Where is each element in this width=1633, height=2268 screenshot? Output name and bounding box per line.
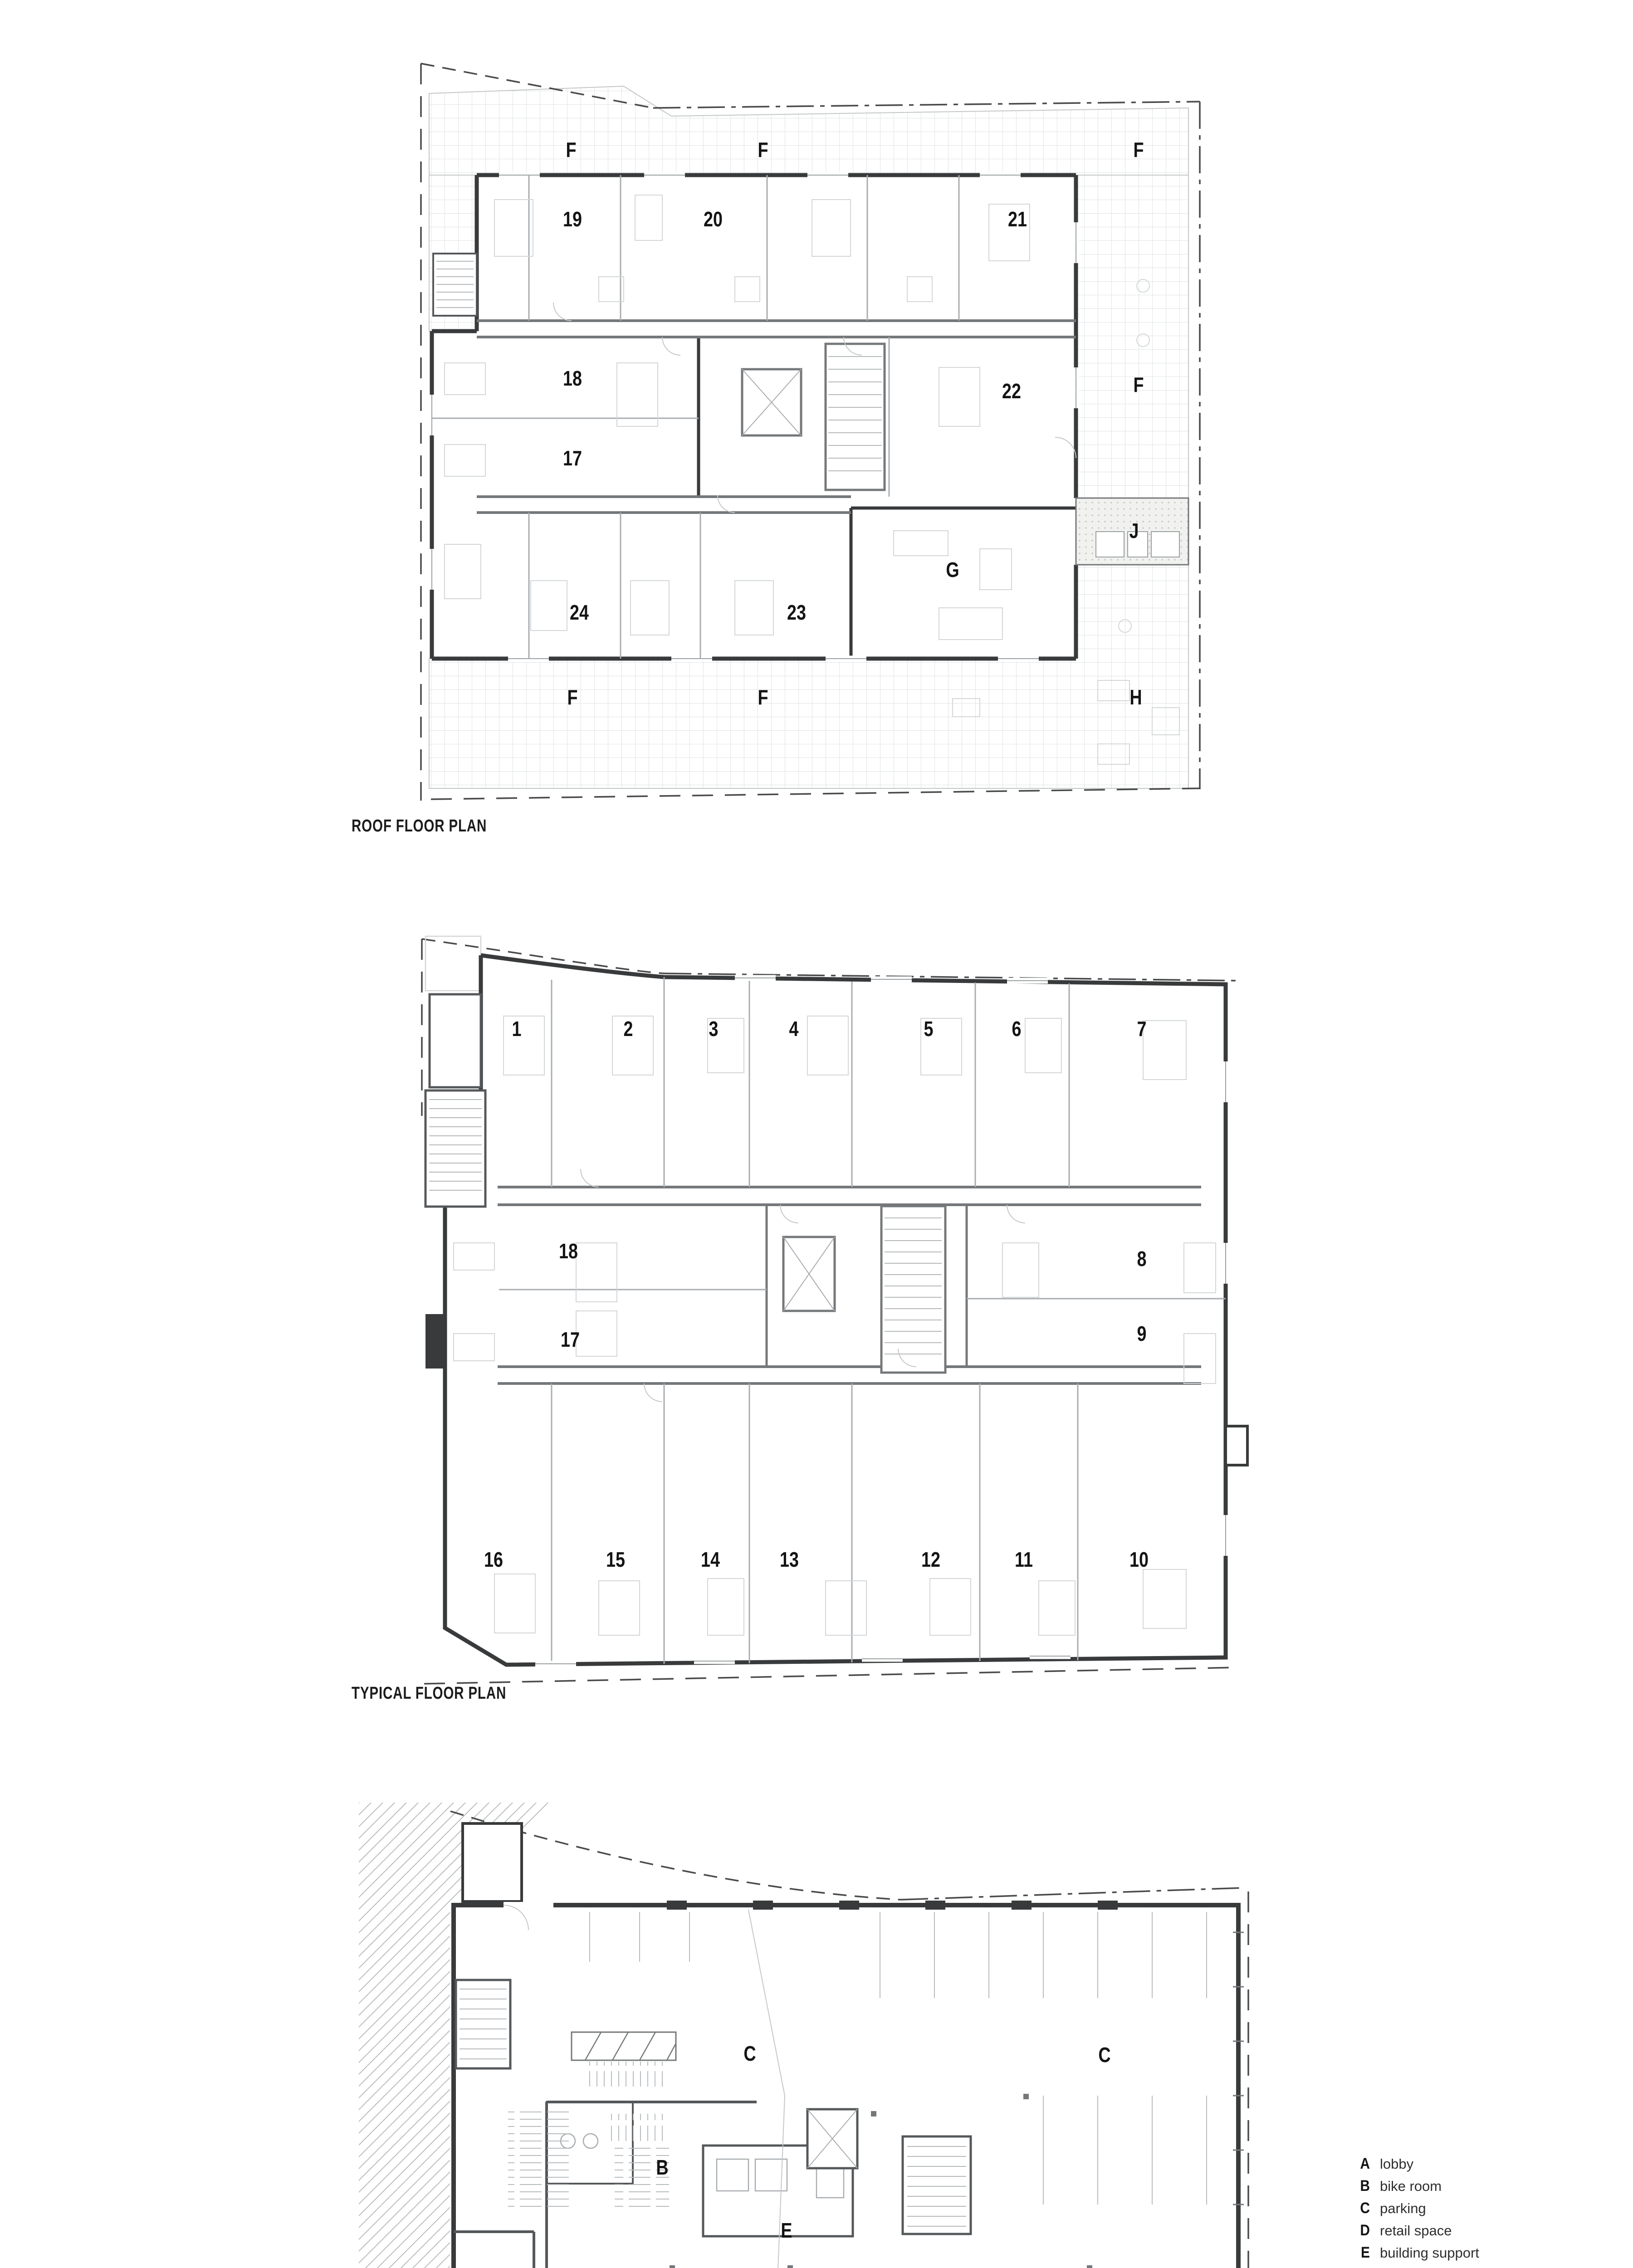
typical-corridor-walls xyxy=(498,1187,1201,1383)
legend-desc: parking xyxy=(1380,2200,1426,2217)
legend-row: Bbike room xyxy=(1311,2175,1479,2197)
roof-dog-run xyxy=(1076,498,1188,565)
typical-left-bump xyxy=(430,994,481,1087)
typical-furniture xyxy=(454,1016,1216,1635)
legend-key: 1-24 xyxy=(1318,2266,1370,2268)
legend-row: Ebuilding support xyxy=(1311,2242,1479,2264)
legend-key: B xyxy=(1318,2177,1370,2195)
roof-plan-drawing xyxy=(417,50,1234,812)
typical-plan-title: TYPICAL FLOOR PLAN xyxy=(352,1684,506,1703)
legend-key: A xyxy=(1318,2155,1370,2173)
ground-ramp xyxy=(572,2032,676,2060)
legend-desc: retail space xyxy=(1380,2223,1452,2239)
legend-desc: bike room xyxy=(1380,2178,1442,2195)
typical-plan-drawing xyxy=(417,925,1252,1696)
legend: AlobbyBbike roomCparkingDretail spaceEbu… xyxy=(1311,2153,1479,2268)
legend-row: Dretail space xyxy=(1311,2219,1479,2242)
typical-partitions xyxy=(499,977,1226,1665)
typical-right-bump xyxy=(1226,1426,1247,1465)
drawing-sheet: { "page": {"width": 3600, "height": 5760… xyxy=(0,0,1633,2268)
legend-key: D xyxy=(1318,2222,1370,2239)
legend-key: C xyxy=(1318,2200,1370,2217)
ground-plan-drawing xyxy=(354,1796,1270,2268)
legend-key: E xyxy=(1318,2244,1370,2262)
typical-stair-icon xyxy=(425,1090,485,1207)
bike-racks xyxy=(508,2062,669,2209)
roof-plan-title: ROOF FLOOR PLAN xyxy=(352,816,487,836)
roof-door-arcs xyxy=(553,303,1076,513)
roof-elevator-icon xyxy=(742,369,801,435)
ground-topleft-room xyxy=(463,1823,522,1901)
parking-ramp-lines xyxy=(748,1910,785,2268)
roof-stair-icon xyxy=(433,254,885,490)
ground-elevator-icon xyxy=(807,2109,857,2168)
typical-core xyxy=(783,1206,945,1373)
storefront-mullions xyxy=(549,1932,1244,2268)
ground-building-walls xyxy=(454,1905,1238,2268)
legend-desc: lobby xyxy=(1380,2156,1413,2172)
typical-shear-wall xyxy=(425,1314,445,1369)
typical-neighbor-outline xyxy=(425,936,481,991)
legend-row: Alobby xyxy=(1311,2153,1479,2175)
legend-row: 1-24unit types xyxy=(1311,2264,1479,2268)
legend-desc: building support xyxy=(1380,2245,1479,2261)
legend-row: Cparking xyxy=(1311,2197,1479,2219)
parking-stalls xyxy=(590,1912,1207,2204)
